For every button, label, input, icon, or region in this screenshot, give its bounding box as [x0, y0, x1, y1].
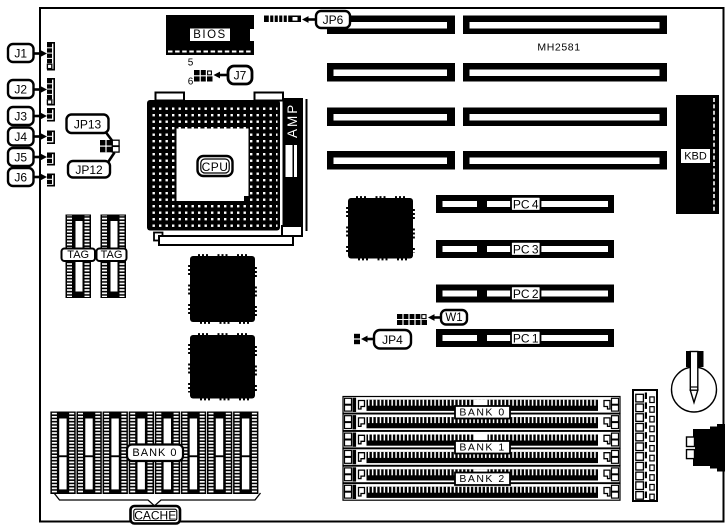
svg-text:CPU: CPU — [202, 160, 229, 174]
svg-text:J5: J5 — [14, 151, 27, 165]
svg-text:JP13: JP13 — [74, 117, 102, 131]
svg-text:CACHE: CACHE — [134, 509, 176, 523]
svg-text:J6: J6 — [14, 171, 27, 185]
svg-text:MH2581: MH2581 — [537, 42, 580, 54]
svg-text:BIOS: BIOS — [193, 29, 226, 41]
svg-text:BANK 2: BANK 2 — [459, 473, 505, 485]
svg-text:J4: J4 — [14, 130, 27, 144]
svg-text:AMP: AMP — [285, 103, 300, 138]
svg-text:KBD: KBD — [684, 151, 707, 163]
svg-text:W1: W1 — [445, 312, 462, 324]
svg-text:PC 4: PC 4 — [513, 197, 539, 211]
svg-text:J3: J3 — [14, 110, 27, 124]
svg-text:JP4: JP4 — [382, 333, 403, 347]
svg-text:JP6: JP6 — [323, 13, 344, 27]
svg-text:TAG: TAG — [67, 249, 89, 261]
svg-text:J1: J1 — [14, 47, 27, 61]
svg-text:JP12: JP12 — [75, 163, 103, 177]
svg-text:BANK 1: BANK 1 — [459, 442, 505, 454]
svg-text:6: 6 — [188, 77, 194, 88]
svg-text:5: 5 — [188, 58, 194, 69]
svg-text:TAG: TAG — [101, 249, 123, 261]
svg-text:PC 2: PC 2 — [513, 287, 539, 301]
svg-text:PC 1: PC 1 — [513, 331, 539, 345]
svg-text:BANK 0: BANK 0 — [132, 447, 177, 459]
svg-text:J7: J7 — [234, 69, 247, 83]
svg-text:J2: J2 — [14, 83, 27, 97]
svg-text:PC 3: PC 3 — [513, 242, 539, 256]
svg-text:BANK 0: BANK 0 — [459, 407, 505, 419]
